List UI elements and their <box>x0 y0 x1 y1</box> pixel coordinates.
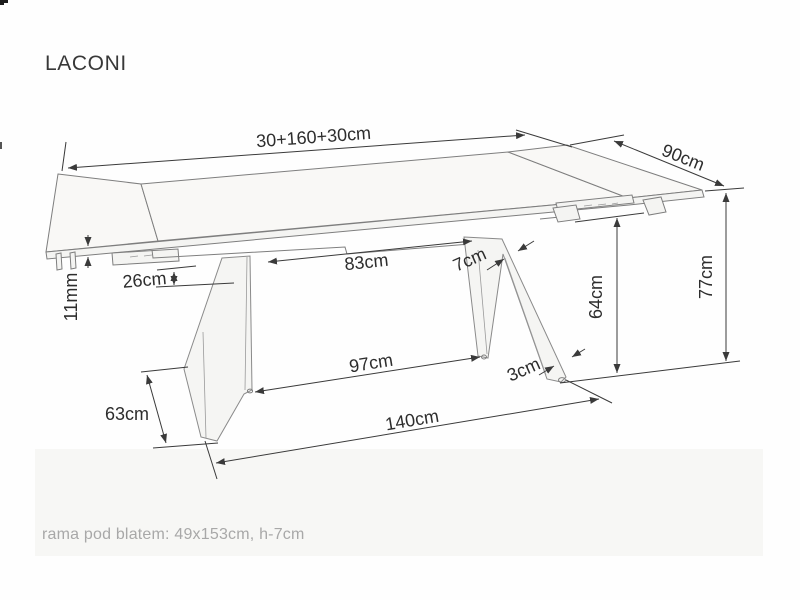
dim-leg-foot-depth: 63cm <box>105 367 188 443</box>
extension-line <box>575 213 644 222</box>
right-support-bracket <box>553 205 580 222</box>
extension-line <box>516 130 572 147</box>
ground-line <box>560 361 740 383</box>
table-dimension-diagram: 30+160+30cm 90cm 77cm 64cm 83cm <box>0 0 800 600</box>
dim-label-leg-foot-depth: 63cm <box>105 404 149 424</box>
dim-feet-clearance: 97cm <box>255 350 480 392</box>
extension-line <box>570 135 624 145</box>
arrow-line <box>572 349 585 357</box>
dim-label-feet-clearance: 97cm <box>348 350 395 377</box>
arrow-line <box>518 241 534 251</box>
dim-underframe-height: 64cm <box>575 213 644 373</box>
dim-label-foot-thickness: 3cm <box>504 353 543 385</box>
left-leaf-peg <box>56 253 62 270</box>
dim-label-legs-top-clearance: 83cm <box>343 250 389 274</box>
dim-label-table-height: 77cm <box>696 255 716 299</box>
frame-note: rama pod blatem: 49x153cm, h-7cm <box>42 526 305 544</box>
scan-artifact-marks <box>0 0 8 149</box>
reference-line <box>141 367 188 372</box>
left-leaf-peg <box>70 252 76 269</box>
diagram-page: LACONI <box>0 0 800 600</box>
dim-label-base-length: 140cm <box>384 406 441 435</box>
dim-label-apron-offset: 26cm <box>122 268 168 292</box>
dim-table-height: 77cm <box>696 188 744 361</box>
extension-line <box>705 188 744 191</box>
dim-label-top-thickness: 11mm <box>61 273 81 322</box>
right-foot-extension <box>566 380 612 403</box>
dimension-line <box>147 375 166 443</box>
extension-line <box>62 142 66 171</box>
dim-label-underframe-height: 64cm <box>586 275 606 319</box>
ground-tick-left <box>153 443 218 448</box>
